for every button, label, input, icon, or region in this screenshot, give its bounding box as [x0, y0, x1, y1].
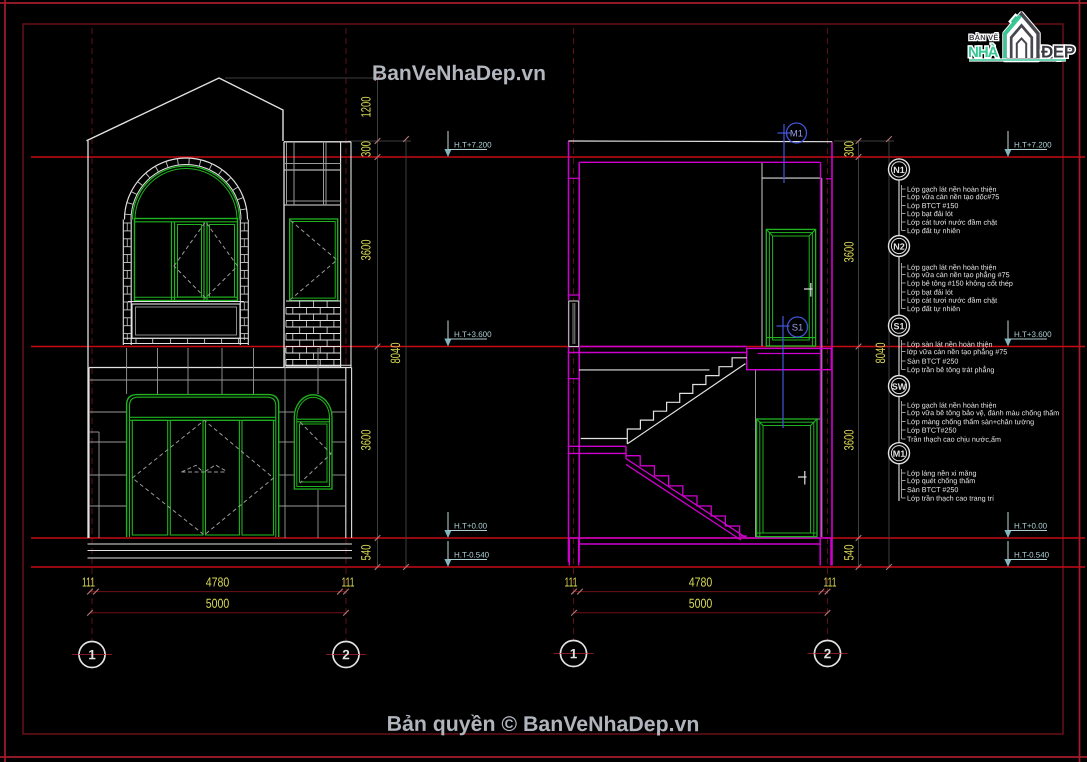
svg-text:N2: N2 [893, 242, 905, 252]
svg-text:Lớp BTCT#250: Lớp BTCT#250 [907, 426, 956, 435]
svg-text:2: 2 [342, 647, 350, 662]
svg-text:H.T+3.600: H.T+3.600 [1014, 330, 1052, 339]
svg-text:5000: 5000 [689, 596, 713, 611]
svg-text:3600: 3600 [359, 430, 374, 451]
svg-text:3600: 3600 [842, 430, 857, 451]
svg-text:1200: 1200 [359, 97, 374, 118]
svg-text:540: 540 [359, 545, 374, 561]
svg-text:4780: 4780 [689, 574, 713, 589]
svg-text:Bản quyền © BanVeNhaDep.vn: Bản quyền © BanVeNhaDep.vn [387, 712, 700, 736]
svg-text:111: 111 [823, 574, 836, 589]
svg-text:H.T+0.00: H.T+0.00 [454, 522, 488, 531]
svg-text:Lớp trần bê tông trát phẳng: Lớp trần bê tông trát phẳng [907, 365, 994, 374]
svg-text:Lớp quét chống thấm: Lớp quét chống thấm [907, 476, 975, 485]
svg-text:111: 111 [341, 574, 354, 589]
svg-text:SW: SW [892, 382, 907, 392]
svg-text:H.T+7.200: H.T+7.200 [454, 141, 492, 150]
svg-text:Lớp đất tự nhiên: Lớp đất tự nhiên [907, 226, 960, 235]
svg-text:lớp vữa cán nền tạo phẳng #75: lớp vữa cán nền tạo phẳng #75 [907, 347, 1007, 356]
svg-text:1: 1 [570, 646, 578, 661]
svg-text:BẢN VẼ: BẢN VẼ [969, 33, 999, 42]
svg-text:Trần thạch cao chịu nước,ẩm: Trần thạch cao chịu nước,ẩm [907, 435, 1001, 444]
svg-text:300: 300 [359, 141, 374, 157]
svg-text:H.T-0.540: H.T-0.540 [1014, 551, 1050, 560]
svg-text:Lớp đất tự nhiên: Lớp đất tự nhiên [907, 304, 960, 313]
svg-text:8040: 8040 [873, 343, 888, 364]
svg-text:H.T+0.00: H.T+0.00 [1014, 522, 1048, 531]
svg-text:3600: 3600 [359, 240, 374, 261]
svg-text:NHÀ: NHÀ [968, 43, 999, 61]
svg-text:4780: 4780 [206, 574, 230, 589]
svg-text:H.T+3.600: H.T+3.600 [454, 330, 492, 339]
svg-text:2: 2 [824, 646, 832, 661]
svg-text:S1: S1 [792, 322, 804, 333]
svg-text:5000: 5000 [206, 596, 230, 611]
svg-text:S1: S1 [893, 321, 904, 331]
svg-text:300: 300 [842, 141, 857, 157]
svg-text:N1: N1 [893, 165, 905, 175]
svg-text:M1: M1 [893, 449, 906, 459]
svg-text:111: 111 [82, 574, 95, 589]
svg-text:Lớp bê tông #150 không cốt th: Lớp bê tông #150 không cốt thép [907, 279, 1013, 288]
svg-text:8040: 8040 [388, 343, 403, 364]
svg-text:1: 1 [88, 647, 96, 662]
svg-text:3600: 3600 [842, 242, 857, 263]
svg-text:H.T-0.540: H.T-0.540 [454, 551, 490, 560]
svg-text:BanVeNhaDep.vn: BanVeNhaDep.vn [372, 62, 546, 85]
svg-text:H.T+7.200: H.T+7.200 [1014, 141, 1052, 150]
svg-text:M1: M1 [790, 128, 803, 139]
svg-text:Lớp vữa bê tông bảo vệ, đánh m: Lớp vữa bê tông bảo vệ, đánh màu chống t… [907, 408, 1059, 417]
svg-text:111: 111 [564, 574, 577, 589]
svg-text:540: 540 [842, 545, 857, 561]
svg-text:Lớp vữa cán nền tạo dốc#75: Lớp vữa cán nền tạo dốc#75 [907, 192, 999, 201]
svg-text:Lớp trần thạch cao trang trí: Lớp trần thạch cao trang trí [907, 494, 994, 503]
